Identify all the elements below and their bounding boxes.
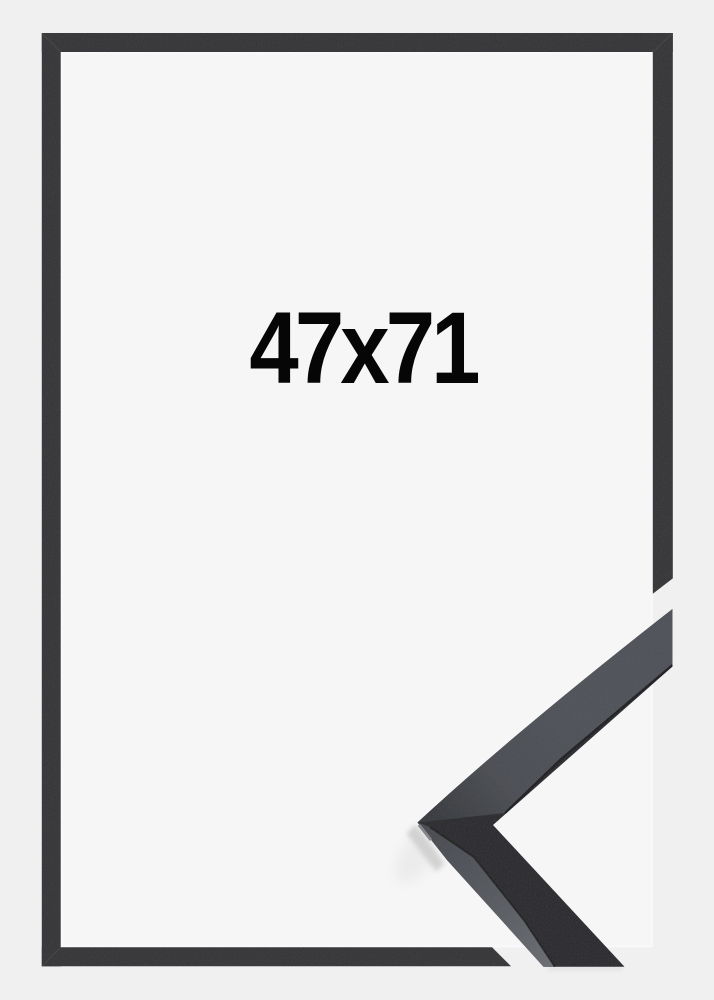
svg-text:47x71: 47x71 xyxy=(249,291,478,405)
